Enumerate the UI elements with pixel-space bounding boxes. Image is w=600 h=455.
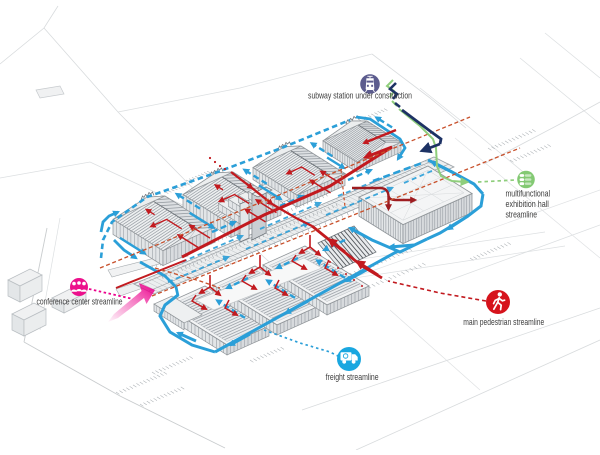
svg-text:freight streamline: freight streamline [326, 372, 379, 383]
svg-text:main pedestrian streamline: main pedestrian streamline [463, 317, 544, 328]
svg-text:exhibition hall: exhibition hall [506, 199, 549, 210]
svg-text:conference center streamline: conference center streamline [37, 297, 123, 308]
svg-text:multifunctional: multifunctional [506, 189, 551, 200]
svg-text:subway station under construct: subway station under construction [308, 91, 412, 102]
svg-text:streamline: streamline [506, 209, 538, 220]
